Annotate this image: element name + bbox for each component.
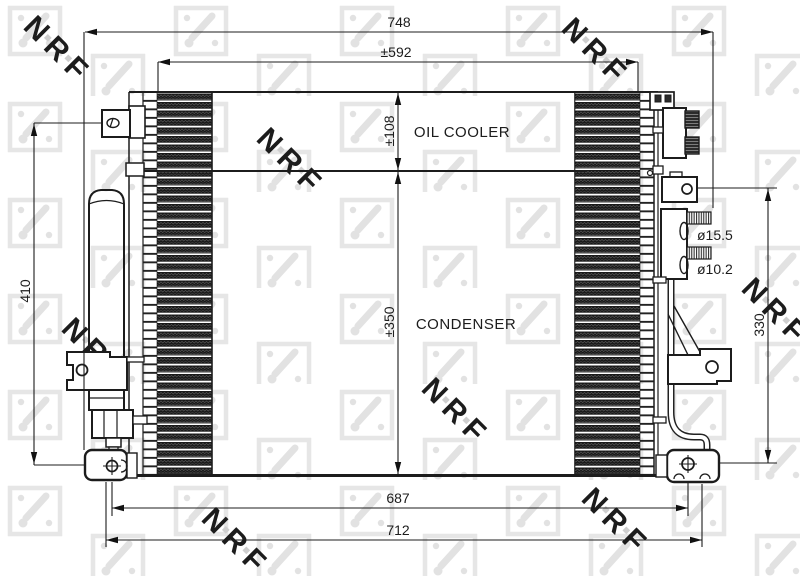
refrigerant-connector-block xyxy=(661,209,687,279)
right-fin-band xyxy=(575,92,640,474)
dim-text-712: 712 xyxy=(386,522,410,538)
oil-cooler-connector-upper xyxy=(685,111,699,128)
dim-text-fitting-large: ø15.5 xyxy=(697,227,733,243)
condenser-label: CONDENSER xyxy=(416,316,516,333)
oil-cooler-fitting-block xyxy=(663,108,686,158)
dim-text-108: ±108 xyxy=(381,115,397,146)
stud-small xyxy=(687,247,711,259)
left-divider-clip xyxy=(126,163,144,176)
dim-text-592: ±592 xyxy=(380,44,411,60)
left-top-flange xyxy=(129,106,145,138)
dim-text-330: 330 xyxy=(751,313,767,337)
oil-cooler-connector-lower xyxy=(685,137,699,154)
oil-cooler-label: OIL COOLER xyxy=(414,124,510,141)
dim-text-410: 410 xyxy=(17,279,33,303)
right-mid-bracket xyxy=(668,349,731,384)
left-top-bracket xyxy=(102,110,130,137)
right-fin-teeth xyxy=(640,94,654,474)
left-fin-band xyxy=(157,92,212,474)
dim-text-fitting-small: ø10.2 xyxy=(697,261,733,277)
condenser-oil-cooler-drawing: NRF NRF NRF NRF NRF xyxy=(0,0,800,577)
dim-text-350: ±350 xyxy=(381,306,397,337)
dim-text-687: 687 xyxy=(386,490,410,506)
dim-text-748: 748 xyxy=(387,14,411,30)
technical-drawing-canvas: NRF NRF NRF NRF NRF xyxy=(0,0,800,577)
drier-valve-block xyxy=(92,410,133,438)
stud-large xyxy=(687,212,711,224)
